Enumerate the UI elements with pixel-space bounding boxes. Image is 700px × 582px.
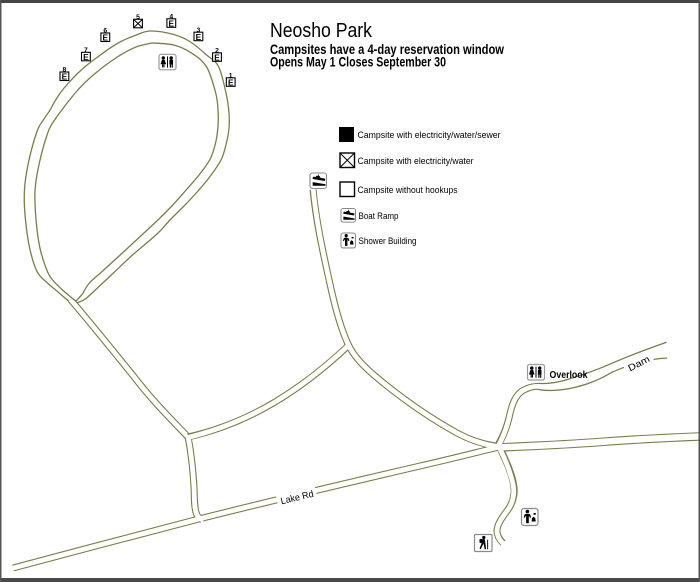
svg-text:Shower Building: Shower Building [359,236,417,246]
svg-text:2: 2 [215,47,219,54]
svg-text:Boat Ramp: Boat Ramp [359,211,399,221]
svg-text:Campsite with electricity/wate: Campsite with electricity/water/sewer [358,130,501,140]
svg-text:Campsite without hookups: Campsite without hookups [358,185,458,195]
svg-text:6: 6 [103,28,107,35]
svg-text:E: E [83,53,89,62]
svg-text:7: 7 [84,47,88,54]
svg-text:E: E [214,53,220,62]
svg-text:E: E [196,33,202,42]
svg-text:E: E [103,34,109,43]
svg-text:4: 4 [169,13,173,20]
svg-text:Campsite with electricity/wate: Campsite with electricity/water [358,156,474,166]
svg-text:E: E [169,19,175,28]
svg-text:3: 3 [197,27,201,34]
svg-text:E: E [228,78,234,87]
svg-text:Opens May 1 Closes September 3: Opens May 1 Closes September 30 [270,55,446,70]
svg-text:E: E [62,73,68,82]
svg-text:1: 1 [229,72,233,79]
svg-text:8: 8 [63,67,67,74]
svg-text:Neosho Park: Neosho Park [270,20,373,42]
svg-text:5: 5 [136,14,140,21]
svg-text:Overlook: Overlook [550,370,588,381]
